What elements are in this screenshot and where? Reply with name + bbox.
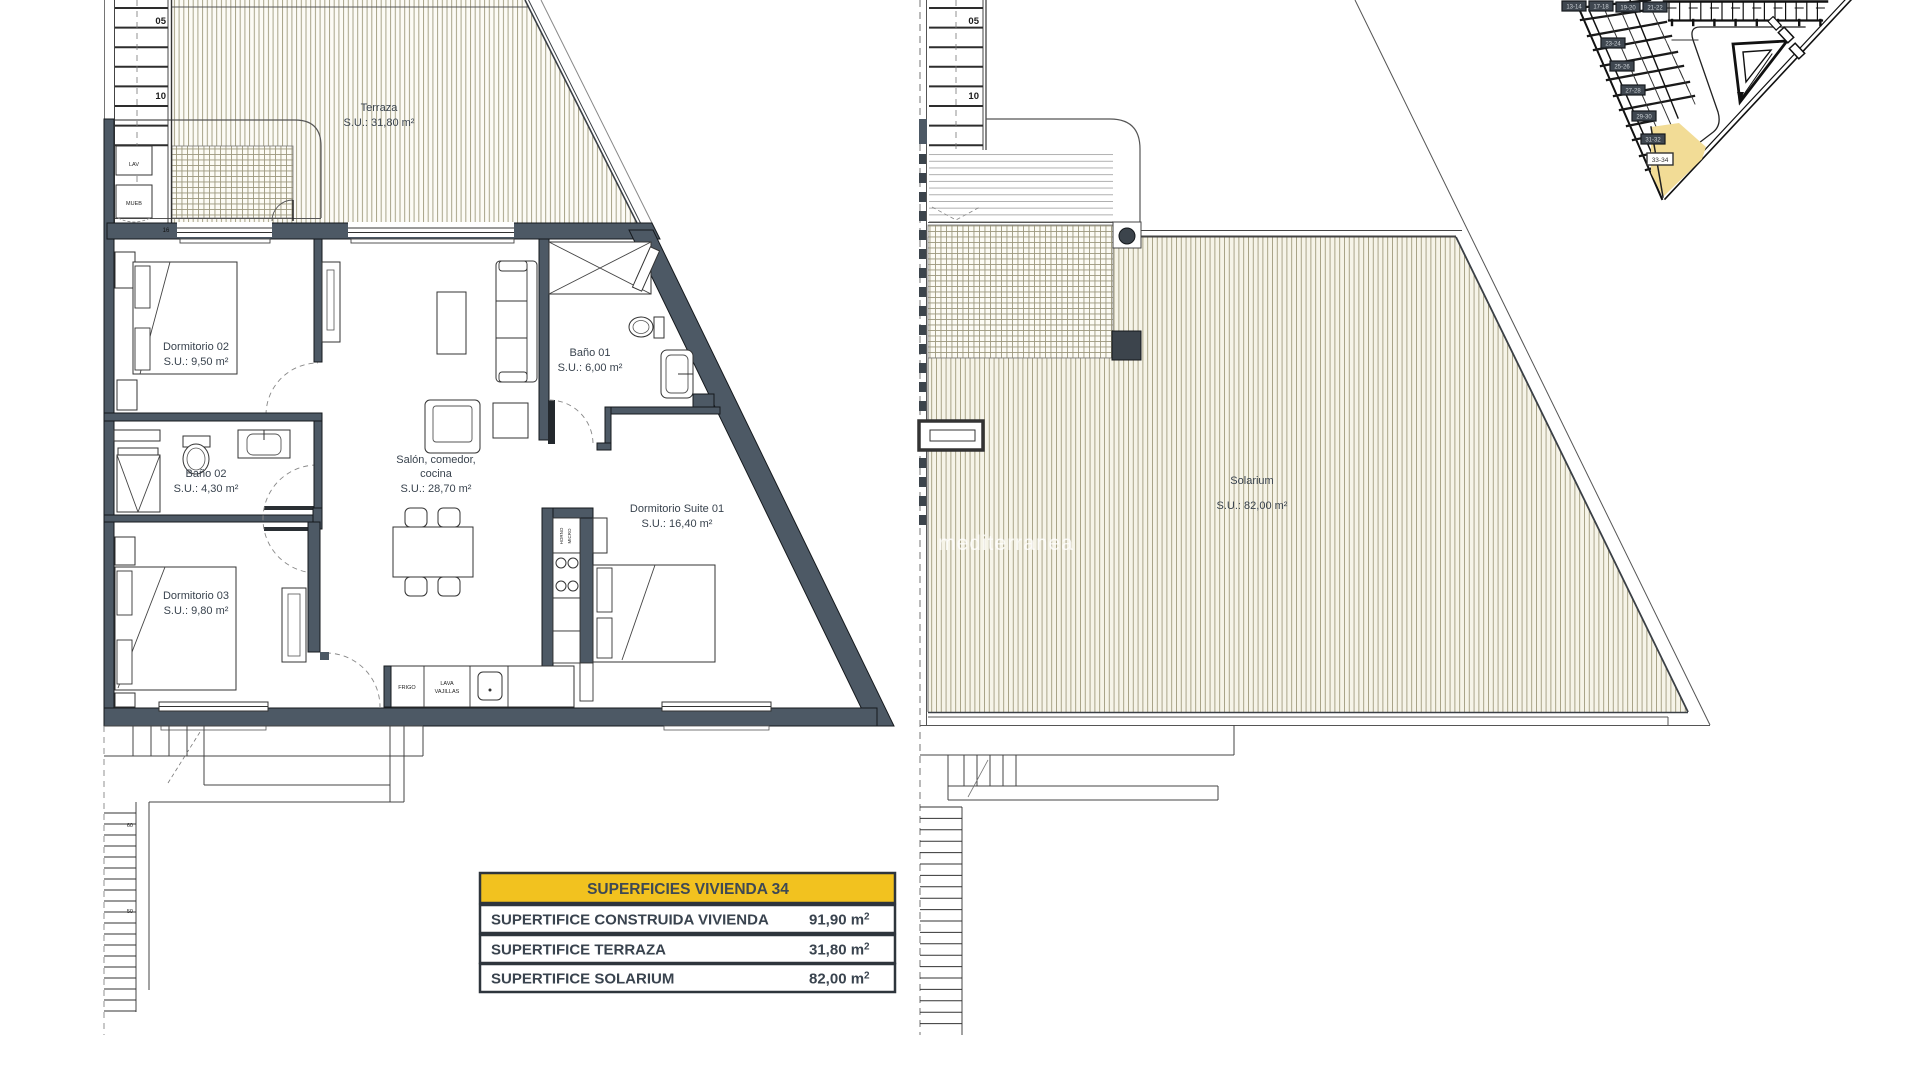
svg-text:Solarium: Solarium	[1230, 475, 1273, 487]
svg-text:31-32: 31-32	[1645, 138, 1661, 144]
svg-text:10: 10	[155, 91, 166, 102]
svg-text:Salón, comedor,: Salón, comedor,	[396, 454, 476, 466]
svg-text:10: 10	[968, 91, 979, 102]
svg-text:91,90 m2: 91,90 m2	[809, 912, 870, 929]
svg-text:23-24: 23-24	[1605, 42, 1621, 48]
svg-text:31,80 m2: 31,80 m2	[809, 942, 870, 959]
svg-text:mediterranea: mediterranea	[938, 532, 1074, 555]
svg-text:MUEB: MUEB	[126, 201, 142, 207]
svg-text:16: 16	[163, 228, 170, 234]
svg-text:SUPERFICIES VIVIENDA 34: SUPERFICIES VIVIENDA 34	[587, 881, 789, 898]
svg-text:17-18: 17-18	[1593, 5, 1609, 11]
svg-text:60: 60	[127, 823, 133, 829]
svg-text:S.U.: 82,00 m²: S.U.: 82,00 m²	[1217, 500, 1288, 512]
svg-text:Terraza: Terraza	[361, 102, 399, 114]
svg-text:82,00 m2: 82,00 m2	[809, 971, 870, 988]
svg-text:S.U.: 6,00 m²: S.U.: 6,00 m²	[558, 362, 623, 374]
svg-text:SUPERTIFICE CONSTRUIDA VIVIEND: SUPERTIFICE CONSTRUIDA VIVIENDA	[491, 912, 769, 929]
svg-text:FRIGO: FRIGO	[398, 685, 416, 691]
svg-text:Dormitorio 03: Dormitorio 03	[163, 590, 229, 602]
svg-text:21-22: 21-22	[1647, 6, 1663, 12]
svg-text:Baño 02: Baño 02	[186, 468, 227, 480]
svg-text:S.U.: 9,80 m²: S.U.: 9,80 m²	[164, 605, 229, 617]
svg-text:27-28: 27-28	[1625, 89, 1641, 95]
svg-text:05: 05	[968, 16, 979, 27]
svg-text:25-26: 25-26	[1614, 65, 1630, 71]
svg-text:29-30: 29-30	[1636, 115, 1652, 121]
svg-text:Baño 01: Baño 01	[570, 347, 611, 359]
svg-text:LAVA: LAVA	[440, 681, 454, 687]
svg-text:S.U.: 16,40 m²: S.U.: 16,40 m²	[642, 518, 713, 530]
svg-text:SUPERTIFICE SOLARIUM: SUPERTIFICE SOLARIUM	[491, 971, 674, 988]
svg-text:33-34: 33-34	[1652, 157, 1669, 164]
svg-text:HORNO: HORNO	[559, 527, 564, 544]
svg-text:LAV: LAV	[129, 162, 139, 168]
svg-text:S.U.: 28,70 m²: S.U.: 28,70 m²	[401, 483, 472, 495]
svg-text:cocina: cocina	[420, 468, 453, 480]
svg-text:SUPERTIFICE TERRAZA: SUPERTIFICE TERRAZA	[491, 942, 666, 959]
svg-text:MICRO: MICRO	[567, 528, 572, 543]
svg-text:VAJILLAS: VAJILLAS	[435, 689, 460, 695]
svg-text:S.U.: 9,50 m²: S.U.: 9,50 m²	[164, 356, 229, 368]
svg-text:19-20: 19-20	[1620, 6, 1636, 12]
svg-text:S.U.: 4,30 m²: S.U.: 4,30 m²	[174, 483, 239, 495]
svg-text:Dormitorio Suite 01: Dormitorio Suite 01	[630, 503, 724, 515]
svg-text:13-14: 13-14	[1566, 5, 1582, 11]
svg-text:05: 05	[155, 16, 166, 27]
svg-text:Dormitorio 02: Dormitorio 02	[163, 341, 229, 353]
svg-text:50: 50	[127, 909, 133, 915]
svg-text:S.U.: 31,80 m²: S.U.: 31,80 m²	[344, 117, 415, 129]
